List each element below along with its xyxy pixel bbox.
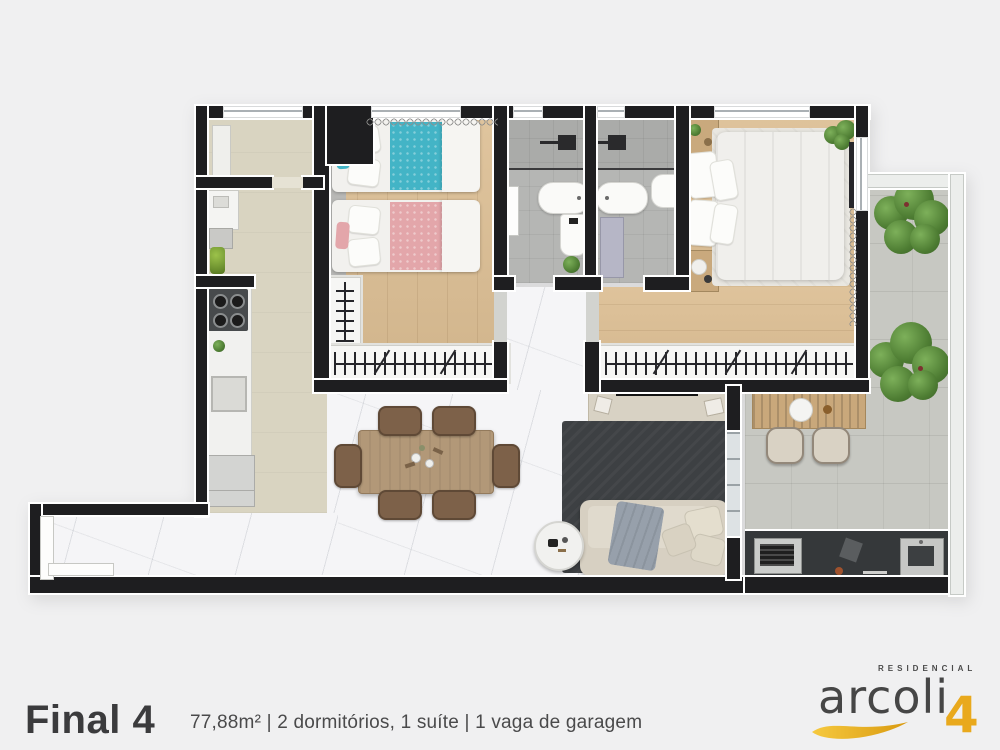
duvet-foot xyxy=(442,200,480,272)
counter-deco xyxy=(863,571,887,574)
kitchen-plant xyxy=(213,340,225,352)
toilet xyxy=(560,214,587,256)
single-bed-pink xyxy=(332,200,480,272)
dining-chair xyxy=(334,444,362,488)
dining-chair xyxy=(492,444,520,488)
coffee-table xyxy=(534,521,584,571)
kitchen-sink xyxy=(211,376,247,412)
logo-unit-number: 4 xyxy=(944,686,979,744)
entry-door-leaf xyxy=(48,563,114,576)
shower-glass-divider xyxy=(507,168,587,170)
window xyxy=(598,107,624,117)
unit-title: Final 4 xyxy=(25,698,155,743)
refrigerator xyxy=(207,455,255,507)
accent-pillow xyxy=(335,222,350,250)
counter-deco xyxy=(839,538,863,563)
sliding-glass-door xyxy=(727,432,740,538)
wall xyxy=(555,277,601,290)
door-threshold xyxy=(272,177,303,188)
suite-window-frame xyxy=(849,142,856,208)
stove-cooktop xyxy=(208,289,248,331)
wall xyxy=(745,577,952,593)
terrace-stool xyxy=(812,427,850,464)
bathroom-plant xyxy=(563,256,580,273)
terrace-tree xyxy=(874,180,954,260)
wall xyxy=(30,577,750,593)
hallway-floor xyxy=(505,287,590,399)
window xyxy=(715,107,809,117)
window xyxy=(372,107,460,117)
wardrobe-bedroom2 xyxy=(327,343,511,384)
shower-head xyxy=(558,135,576,150)
pink-blanket xyxy=(390,202,446,270)
wall xyxy=(585,106,596,290)
floor-plan xyxy=(0,0,1000,750)
dining-table xyxy=(358,430,494,494)
curtain xyxy=(849,208,857,326)
logo-swoosh-icon xyxy=(810,716,912,744)
terrace-high-table xyxy=(752,388,866,429)
curtain xyxy=(366,118,498,126)
wall xyxy=(727,538,740,579)
dining-chair xyxy=(432,490,476,520)
wall xyxy=(30,504,208,515)
throw-blanket xyxy=(607,501,664,572)
blue-blanket xyxy=(390,122,446,190)
wardrobe-suite xyxy=(598,343,860,384)
window xyxy=(857,138,867,210)
unit-specs: 77,88m² | 2 dormitórios, 1 suíte | 1 vag… xyxy=(190,712,642,734)
bathroom-sink xyxy=(596,182,648,214)
picture-frame xyxy=(593,395,612,414)
dining-chair xyxy=(378,490,422,520)
grill xyxy=(754,538,802,574)
dining-chair xyxy=(378,406,422,436)
bathroom-door-leaf xyxy=(506,186,519,236)
wall xyxy=(727,386,740,432)
terrace-parapet xyxy=(950,174,964,595)
toilet xyxy=(651,174,679,208)
terrace-tree xyxy=(868,322,952,406)
wall xyxy=(196,177,272,188)
bathroom-sink xyxy=(538,182,590,214)
wall xyxy=(196,106,207,516)
shower-glass-divider xyxy=(597,168,677,170)
wall xyxy=(494,106,507,290)
duvet-foot xyxy=(442,120,480,192)
bathroom-door-leaf xyxy=(600,217,624,278)
wall xyxy=(645,277,689,290)
washer-lid xyxy=(213,196,229,208)
shower-head xyxy=(608,135,626,150)
wardrobe-bedroom2-side xyxy=(327,275,363,349)
pantry-cabinet xyxy=(212,125,231,179)
window xyxy=(514,107,542,117)
wall xyxy=(303,177,323,188)
wall xyxy=(494,277,514,290)
window xyxy=(224,107,302,117)
dining-chair xyxy=(432,406,476,436)
barbecue-counter xyxy=(745,529,952,579)
picture-frame xyxy=(704,397,725,416)
terrace-sink xyxy=(900,538,944,576)
wall-shaft xyxy=(327,106,373,164)
laundry-basket xyxy=(210,247,225,274)
counter-deco xyxy=(835,567,843,575)
wall xyxy=(314,380,507,392)
wall xyxy=(196,276,254,287)
door-threshold xyxy=(586,292,599,342)
wall xyxy=(585,342,599,392)
wall xyxy=(676,106,689,290)
shower-arm xyxy=(540,141,558,144)
sofa xyxy=(580,500,728,576)
door-threshold xyxy=(494,292,507,342)
laundry-tank xyxy=(209,228,233,249)
terrace-stool xyxy=(766,427,804,464)
